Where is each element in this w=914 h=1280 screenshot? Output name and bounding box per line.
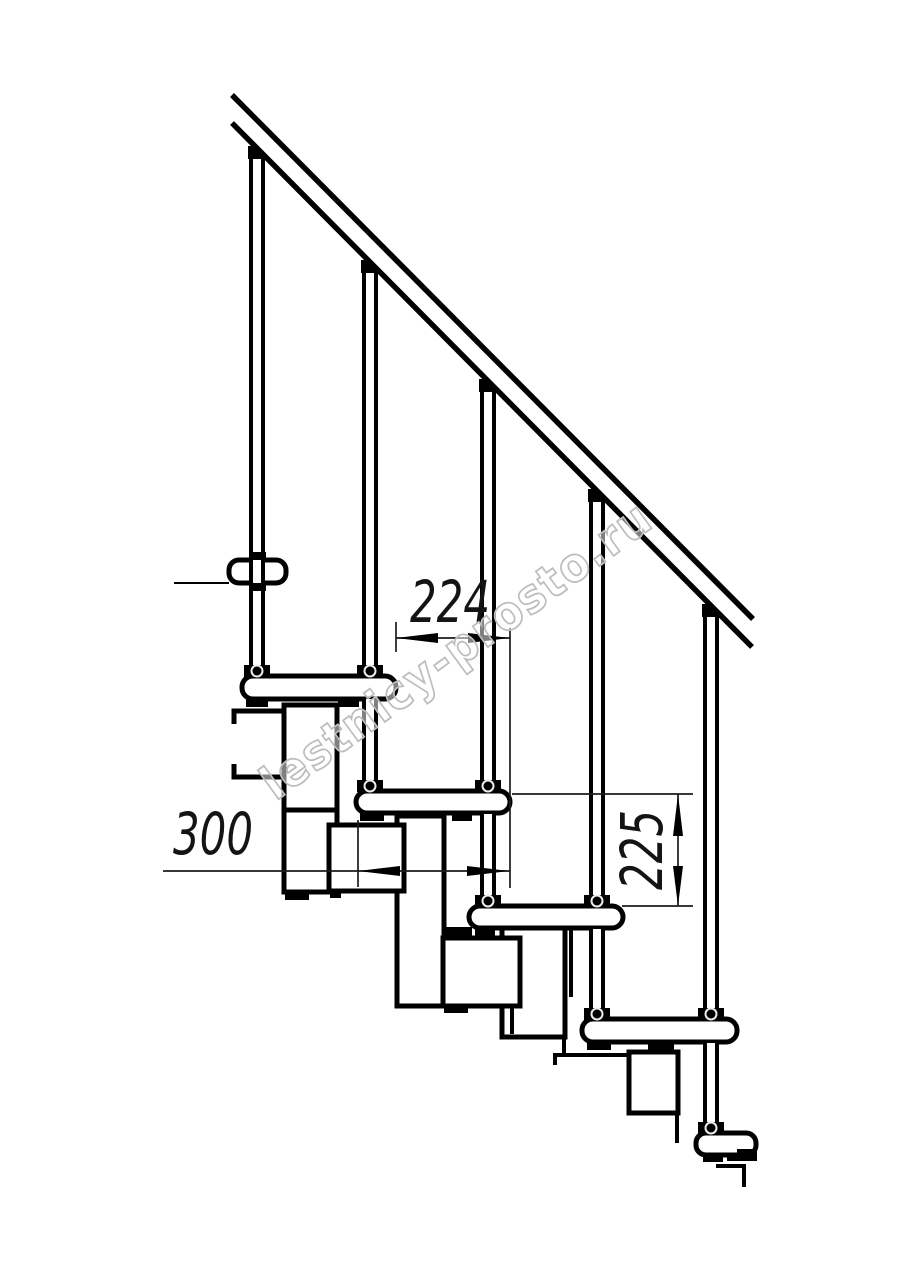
tread-clamp bbox=[703, 1154, 723, 1162]
baluster-collar bbox=[584, 895, 610, 907]
baluster-collar bbox=[698, 1122, 724, 1134]
break-line bbox=[716, 1166, 744, 1187]
tread-3 bbox=[356, 791, 510, 813]
tread-clamp bbox=[475, 927, 495, 936]
tread-5 bbox=[582, 1019, 737, 1042]
module-nub bbox=[444, 1006, 468, 1013]
break-line bbox=[555, 1055, 630, 1065]
tread-clamp bbox=[648, 1041, 674, 1050]
module-box-5 bbox=[629, 1052, 678, 1113]
floor-bracket bbox=[234, 711, 285, 724]
tread-clamp bbox=[250, 583, 266, 591]
module-box-3 bbox=[329, 825, 404, 891]
drawing-page: 224 300 225 lestnicy-prosto.ru bbox=[0, 0, 914, 1280]
module-box-4 bbox=[443, 938, 520, 1006]
baluster-collar bbox=[475, 780, 501, 792]
dimension-riser-height: 225 bbox=[608, 810, 676, 890]
tread-clamp bbox=[246, 698, 268, 707]
module-nub bbox=[330, 891, 341, 898]
tread-clamp bbox=[727, 1154, 737, 1161]
tread-clamp bbox=[360, 812, 384, 821]
tread-clamp bbox=[249, 552, 266, 560]
baluster-collar bbox=[584, 1008, 610, 1020]
tread-clamp bbox=[452, 812, 472, 821]
tread-4 bbox=[469, 906, 623, 928]
tread-clamp bbox=[587, 1041, 611, 1050]
dimension-tread-depth: 300 bbox=[173, 800, 253, 868]
baluster-collar bbox=[475, 895, 501, 907]
baluster-collar bbox=[244, 665, 270, 677]
floor-anchor bbox=[737, 1149, 757, 1161]
baluster-collar bbox=[698, 1008, 724, 1020]
staircase-drawing: 224 300 225 lestnicy-prosto.ru bbox=[0, 0, 914, 1280]
tread-clamp bbox=[446, 927, 472, 936]
baluster-collar bbox=[357, 780, 383, 792]
module-nub bbox=[285, 892, 309, 900]
